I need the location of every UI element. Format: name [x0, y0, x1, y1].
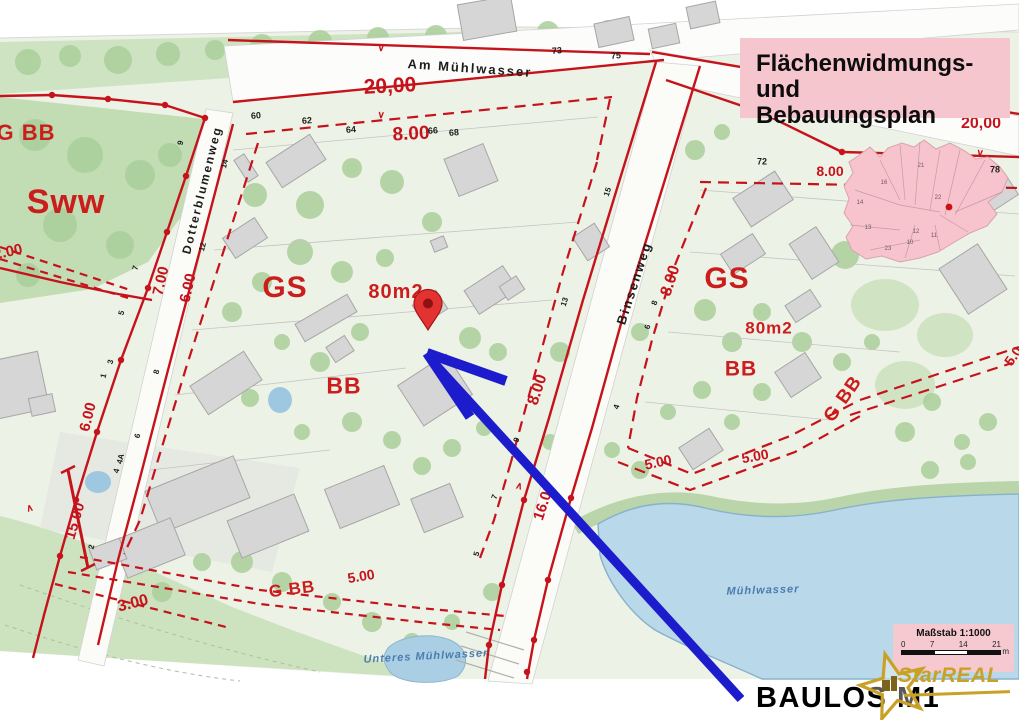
tree — [243, 183, 267, 207]
tree — [923, 393, 941, 411]
tree — [954, 434, 970, 450]
tree — [753, 303, 771, 321]
starreal-logo: StarREAL — [852, 648, 1019, 720]
tree — [383, 431, 401, 449]
tree — [864, 334, 880, 350]
boundary-point — [568, 495, 574, 501]
boundary-point — [164, 229, 170, 235]
tree — [604, 442, 620, 458]
tree — [443, 439, 461, 457]
boundary-point — [49, 92, 55, 98]
tree — [660, 404, 676, 420]
tree — [323, 593, 341, 611]
boundary-point — [521, 497, 527, 503]
boundary-point — [118, 357, 124, 363]
plan-title-box: Flächenwidmungs- und Bebauungsplan — [740, 38, 1010, 118]
boundary-point — [839, 149, 845, 155]
tree — [833, 353, 851, 371]
tree — [272, 572, 292, 592]
boundary-point — [202, 115, 208, 121]
boundary-point — [531, 637, 537, 643]
boundary-point — [145, 285, 151, 291]
tree — [43, 208, 77, 242]
inset-location-dot — [946, 204, 953, 211]
tree — [722, 332, 742, 352]
tree — [156, 42, 180, 66]
boundary-point — [183, 173, 189, 179]
boundary-point — [545, 577, 551, 583]
boundary-point — [105, 96, 111, 102]
pond — [85, 471, 111, 493]
tree — [376, 249, 394, 267]
tree — [476, 420, 492, 436]
tree — [685, 140, 705, 160]
tree — [960, 454, 976, 470]
plan-title-line1: Flächenwidmungs- und — [756, 51, 1010, 103]
boundary-point — [162, 102, 168, 108]
tree — [205, 40, 225, 60]
pond — [268, 387, 292, 413]
boundary-point — [486, 642, 492, 648]
tree — [252, 272, 272, 292]
zoning-plan-page: Am MühlwasserDotterblumenwegBinsenwegMüh… — [0, 0, 1019, 720]
tree — [444, 614, 460, 630]
scale-title: Maßstab 1:1000 — [901, 628, 1006, 639]
plan-title-line2: Bebauungsplan — [756, 103, 1010, 129]
tree — [274, 334, 290, 350]
tree — [193, 553, 211, 571]
tree — [158, 143, 182, 167]
tree — [310, 352, 330, 372]
tree — [67, 137, 103, 173]
tree — [714, 124, 730, 140]
tree — [342, 158, 362, 178]
boundary-point — [499, 582, 505, 588]
tree — [351, 323, 369, 341]
tree — [792, 332, 812, 352]
tree — [694, 299, 716, 321]
tree — [296, 191, 324, 219]
tree — [413, 457, 431, 475]
tree — [753, 383, 771, 401]
tree — [125, 160, 155, 190]
boundary-point — [94, 429, 100, 435]
tree — [294, 424, 310, 440]
tree — [342, 412, 362, 432]
tree — [921, 461, 939, 479]
tree — [15, 49, 41, 75]
logo-brand-text: StarREAL — [898, 664, 1000, 688]
water-unteres-muehlwasser — [384, 636, 466, 683]
tree — [380, 170, 404, 194]
boundary-point — [57, 553, 63, 559]
tree — [979, 413, 997, 431]
tree — [489, 343, 507, 361]
tree — [422, 212, 442, 232]
tree — [104, 46, 132, 74]
tree — [724, 414, 740, 430]
tree — [459, 327, 481, 349]
tree — [331, 261, 353, 283]
tree — [19, 119, 51, 151]
tree — [59, 45, 81, 67]
tree — [895, 422, 915, 442]
tree — [222, 302, 242, 322]
tree — [631, 323, 649, 341]
boundary-point — [524, 669, 530, 675]
tree — [693, 381, 711, 399]
tree — [152, 582, 172, 602]
boundary-point — [73, 497, 79, 503]
tree — [106, 231, 134, 259]
